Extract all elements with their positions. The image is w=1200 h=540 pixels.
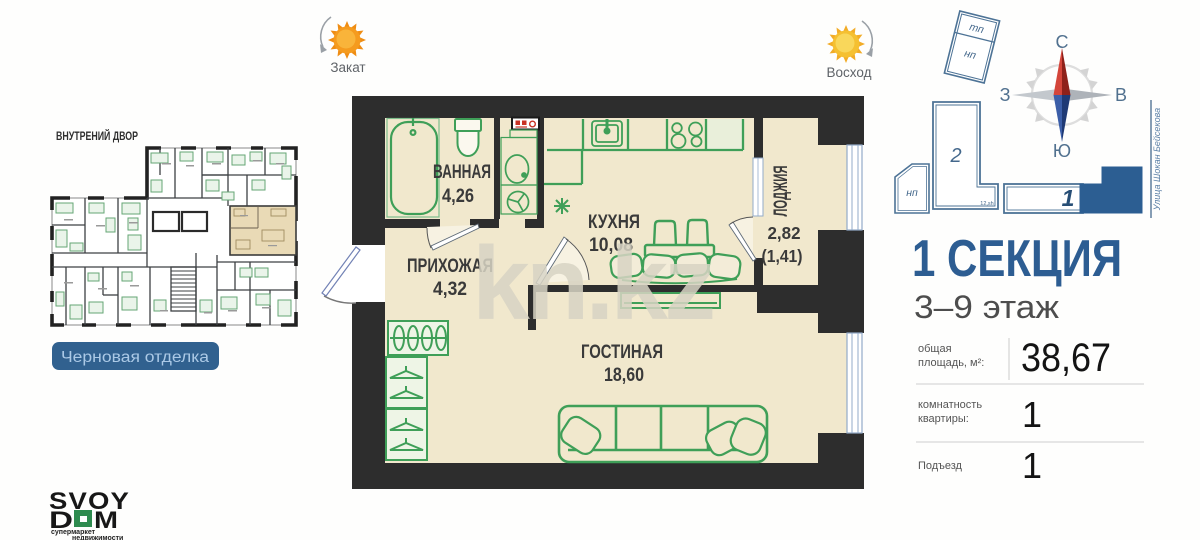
svg-text:недвижимости: недвижимости — [72, 535, 123, 540]
svg-text:Восход: Восход — [827, 65, 872, 80]
svg-text:4,32: 4,32 — [433, 279, 467, 300]
svg-text:2: 2 — [949, 145, 961, 167]
svg-text:ЛОДЖИЯ: ЛОДЖИЯ — [771, 166, 792, 217]
svg-text:ГОСТИНАЯ: ГОСТИНАЯ — [581, 342, 663, 363]
svg-text:З: З — [1000, 85, 1011, 105]
svg-text:ВАННАЯ: ВАННАЯ — [433, 162, 491, 183]
svg-text:1: 1 — [1022, 445, 1042, 486]
svg-text:1: 1 — [1062, 185, 1075, 211]
svg-text:В: В — [1115, 85, 1127, 105]
svg-text:общая: общая — [918, 343, 952, 355]
svg-text:площадь, м²:: площадь, м²: — [918, 357, 984, 369]
svg-text:18,60: 18,60 — [604, 365, 644, 386]
svg-text:Закат: Закат — [330, 60, 365, 75]
svg-text:С: С — [1056, 32, 1069, 52]
svg-text:ВНУТРЕНИЙ ДВОР: ВНУТРЕНИЙ ДВОР — [56, 130, 138, 143]
svg-text:M: M — [94, 507, 118, 534]
svg-text:Улица Шокан Бейсекова: Улица Шокан Бейсекова — [1152, 108, 1162, 211]
svg-text:Подъезд: Подъезд — [918, 460, 963, 472]
svg-text:2,82: 2,82 — [768, 223, 801, 243]
svg-text:kn.kz: kn.kz — [472, 226, 713, 342]
svg-text:12,sh: 12,sh — [980, 201, 993, 207]
svg-text:Ю: Ю — [1053, 141, 1071, 161]
svg-text:нп: нп — [906, 187, 918, 199]
svg-text:Черновая отделка: Черновая отделка — [61, 349, 209, 366]
svg-text:1: 1 — [1022, 394, 1042, 435]
svg-text:квартиры:: квартиры: — [918, 413, 969, 425]
svg-text:1 СЕКЦИЯ: 1 СЕКЦИЯ — [912, 230, 1122, 288]
svg-text:комнатность: комнатность — [918, 399, 982, 411]
svg-text:4,26: 4,26 — [442, 186, 474, 207]
svg-text:38,67: 38,67 — [1021, 336, 1111, 380]
svg-text:3–9 этаж: 3–9 этаж — [914, 289, 1060, 325]
svg-text:(1,41): (1,41) — [762, 246, 803, 266]
